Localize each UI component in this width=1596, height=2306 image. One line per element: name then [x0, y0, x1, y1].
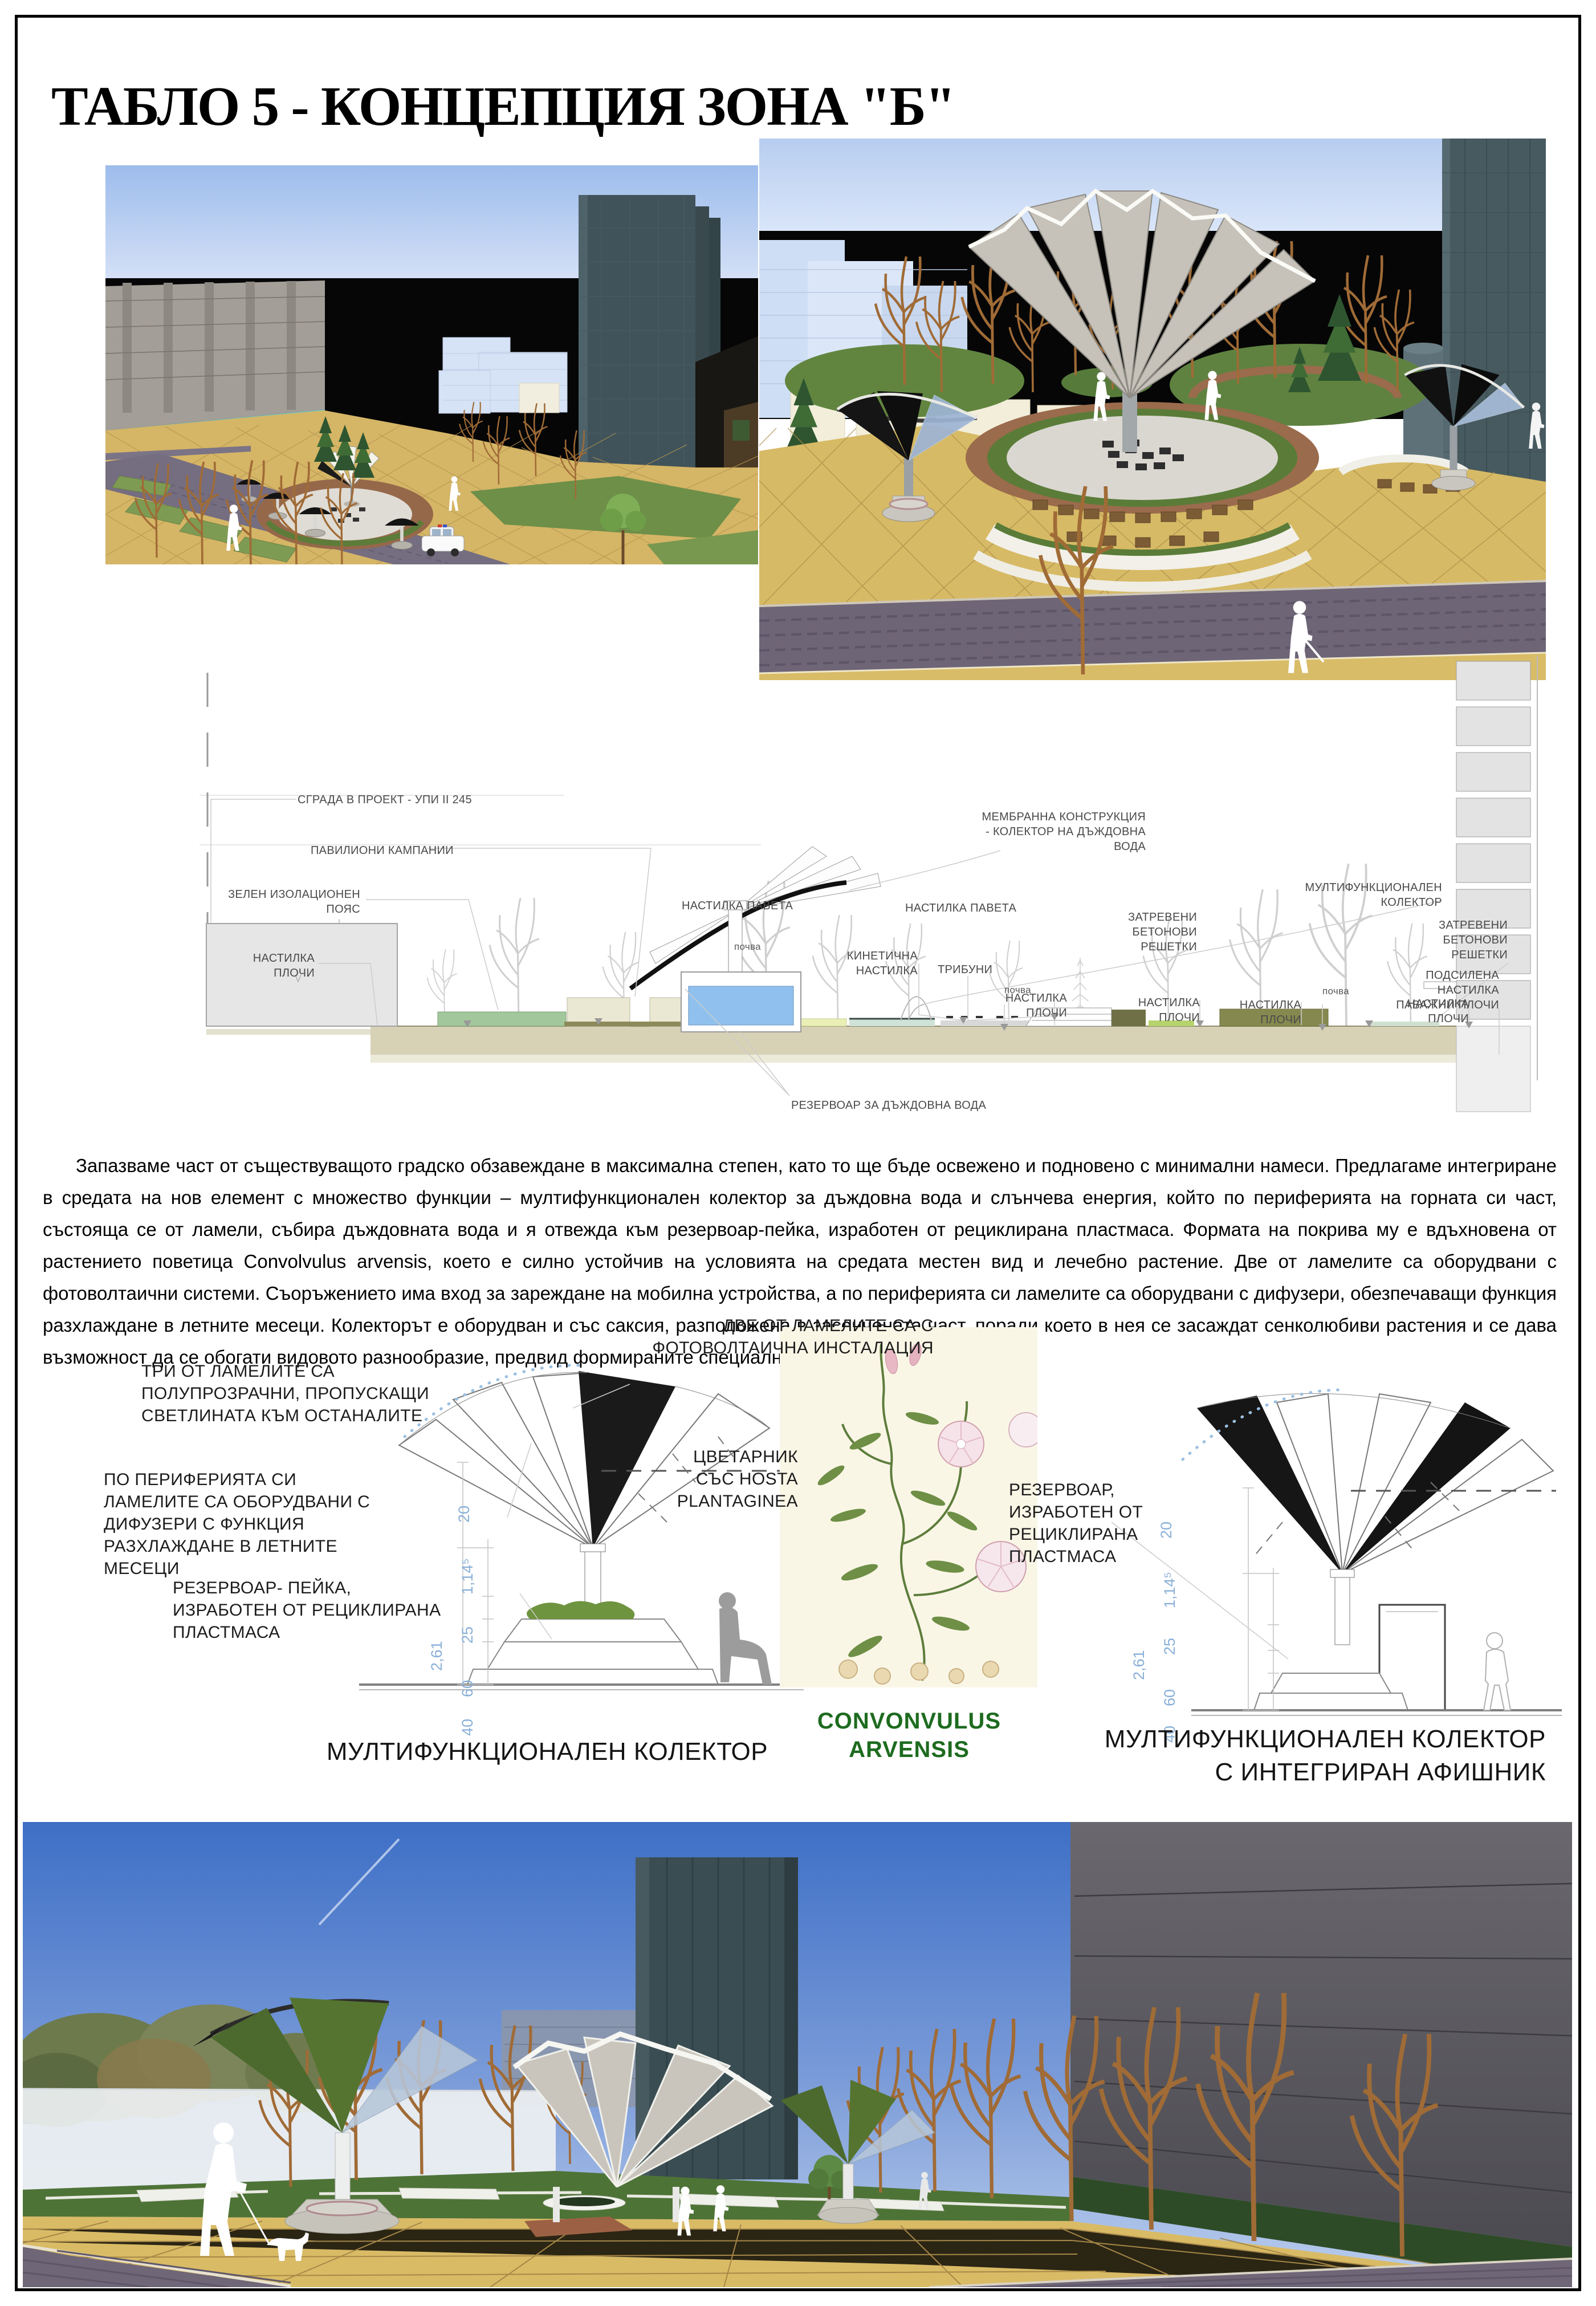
section-label: почва: [734, 940, 761, 954]
section-label: НАСТИЛКА ПЛОЧИ: [1407, 997, 1469, 1026]
dimension-label: 1,14⁵: [1161, 1572, 1179, 1608]
section-label: НАСТИЛКА ПАВЕТА: [682, 898, 793, 913]
dimension-label: 2,61: [428, 1641, 446, 1671]
presentation-board: ТАБЛО 5 - КОНЦЕПЦИЯ ЗОНА "Б": [0, 0, 1596, 2306]
section-label: ЗАТРЕВЕНИ БЕТОНОВИ РЕШЕТКИ: [1439, 918, 1508, 962]
section-label: почва: [1004, 983, 1031, 998]
section-label: ЗЕЛЕН ИЗОЛАЦИОНЕН ПОЯС: [228, 887, 360, 917]
section-label: НАСТИЛКА ПАВЕТА: [905, 901, 1016, 916]
dimension-label: 25: [459, 1626, 477, 1644]
section-label: ЗАТРЕВЕНИ БЕТОНОВИ РЕШЕТКИ: [1128, 910, 1197, 954]
section-label: МЕМБРАННА КОНСТРУКЦИЯ - КОЛЕКТОР НА ДЪЖД…: [982, 810, 1146, 854]
dimension-label: 1,14⁵: [459, 1558, 477, 1595]
section-label: КИНЕТИЧНА НАСТИЛКА: [847, 949, 918, 978]
caption-plant-latin: CONVONVULUS ARVENSIS: [809, 1707, 1009, 1764]
render-aerial-view: [105, 165, 758, 564]
caption-collector-right: МУЛТИФУНКЦИОНАЛЕН КОЛЕКТОР С ИНТЕГРИРАН …: [1105, 1723, 1546, 1789]
section-label: ПАВИЛИОНИ КАМПАНИИ: [311, 843, 454, 858]
section-label: почва: [1322, 984, 1349, 999]
section-label: СГРАДА В ПРОЕКТ - УПИ II 245: [298, 792, 472, 807]
dimension-label: 60: [1161, 1689, 1179, 1706]
render-plaza-view: [759, 139, 1546, 680]
dimension-label: 60: [459, 1680, 477, 1697]
collector-elevation-right: [1111, 1385, 1573, 1756]
annotation-photovoltaic: ДВЕ ОТ ЛАМЕЛИТЕ СА С ФОТОВОЛТАИЧНА ИНСТА…: [652, 1315, 934, 1359]
botanical-illustration: [780, 1327, 1037, 1687]
annotation-translucent-lamellas: ТРИ ОТ ЛАМЕЛИТЕ СА ПОЛУПРОЗРАЧНИ, ПРОПУС…: [141, 1360, 429, 1427]
section-label: НАСТИЛКА ПЛОЧИ: [253, 951, 315, 981]
section-label: РЕЗЕРВОАР ЗА ДЪЖДОВНА ВОДА: [791, 1098, 986, 1113]
annotation-planter-hosta: ЦВЕТАРНИК СЪС HOSTA PLANTAGINEA: [677, 1446, 798, 1512]
annotation-reservoir: РЕЗЕРВОАР, ИЗРАБОТЕН ОТ РЕЦИКЛИРАНА ПЛАС…: [1009, 1479, 1143, 1568]
dimension-label: 20: [455, 1506, 473, 1523]
caption-collector-left: МУЛТИФУНКЦИОНАЛЕН КОЛЕКТОР: [325, 1738, 769, 1766]
page-title: ТАБЛО 5 - КОНЦЕПЦИЯ ЗОНА "Б": [51, 75, 955, 138]
render-street-panorama: [23, 1822, 1572, 2287]
section-label: МУЛТИФУНКЦИОНАЛЕН КОЛЕКТОР: [1305, 880, 1442, 910]
dimension-label: 25: [1161, 1638, 1179, 1655]
dimension-label: 40: [459, 1719, 477, 1736]
section-label: НАСТИЛКА ПЛОЧИ: [1240, 998, 1301, 1027]
section-label: ТРИБУНИ: [938, 962, 992, 977]
dimension-label: 2,61: [1130, 1650, 1148, 1680]
section-label: НАСТИЛКА ПЛОЧИ: [1138, 995, 1200, 1025]
annotation-diffusers: ПО ПЕРИФЕРИЯТА СИ ЛАМЕЛИТЕ СА ОБОРУДВАНИ…: [104, 1469, 370, 1580]
dimension-label: 20: [1158, 1522, 1175, 1539]
annotation-reservoir-bench: РЕЗЕРВОАР- ПЕЙКА, ИЗРАБОТЕН ОТ РЕЦИКЛИРА…: [173, 1577, 441, 1644]
